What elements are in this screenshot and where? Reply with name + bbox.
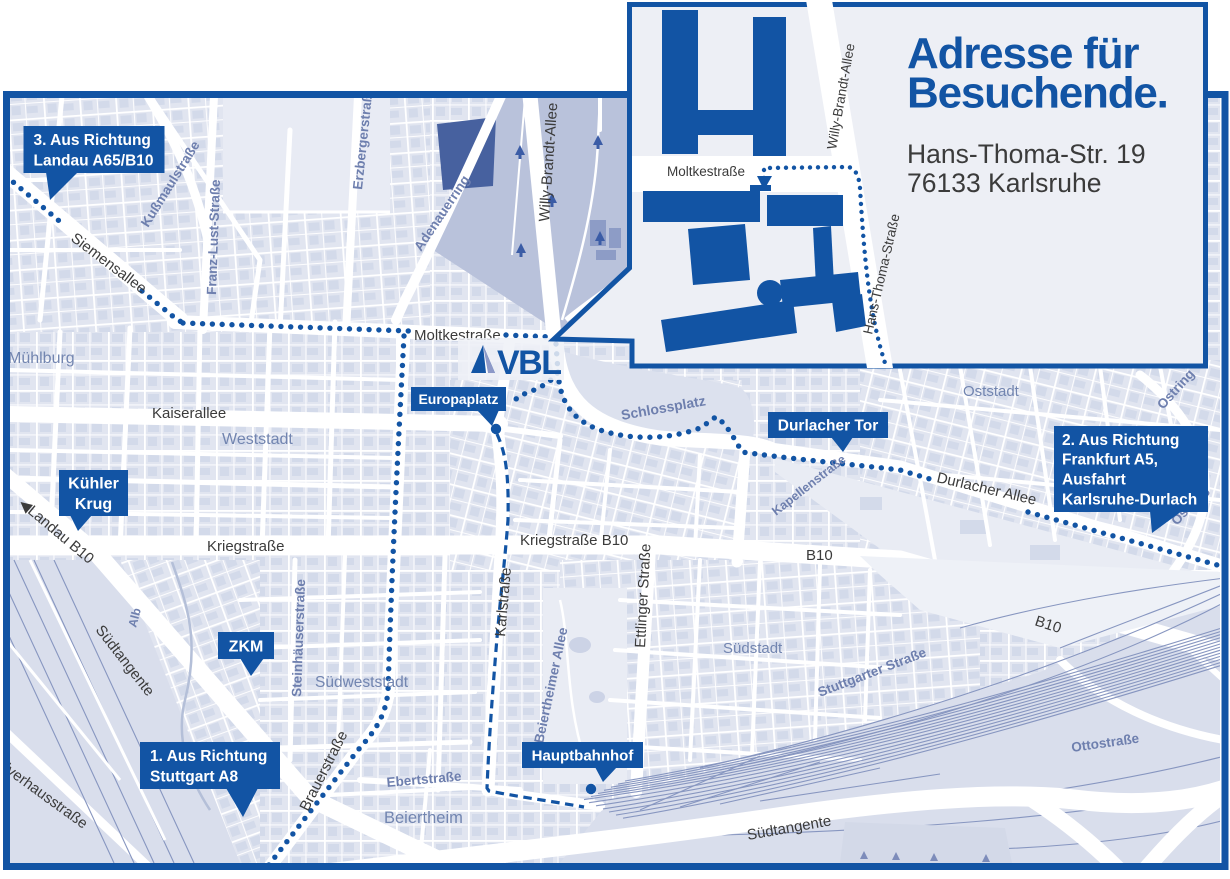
svg-text:Ausfahrt: Ausfahrt [1062, 472, 1126, 489]
svg-text:Kühler: Kühler [68, 476, 119, 493]
svg-text:Südweststadt: Südweststadt [315, 674, 409, 691]
svg-text:1. Aus Richtung: 1. Aus Richtung [150, 748, 267, 765]
svg-text:ZKM: ZKM [229, 638, 264, 655]
svg-text:Oststadt: Oststadt [963, 383, 1020, 400]
svg-text:76133 Karlsruhe: 76133 Karlsruhe [907, 168, 1101, 198]
svg-text:Beiertheim: Beiertheim [384, 809, 463, 827]
svg-text:VBL: VBL [497, 344, 561, 382]
svg-text:Karlsruhe-Durlach: Karlsruhe-Durlach [1062, 491, 1197, 508]
svg-text:Landau A65/B10: Landau A65/B10 [34, 152, 154, 169]
svg-text:3. Aus Richtung: 3. Aus Richtung [34, 132, 151, 149]
svg-text:Durlacher Tor: Durlacher Tor [778, 418, 879, 435]
svg-text:Kriegstraße: Kriegstraße [207, 538, 285, 555]
svg-text:Weststadt: Weststadt [222, 431, 293, 448]
svg-text:Europaplatz: Europaplatz [418, 391, 498, 407]
svg-text:Kriegstraße B10: Kriegstraße B10 [520, 532, 628, 549]
svg-text:Besuchende.: Besuchende. [907, 69, 1168, 118]
svg-text:Mühlburg: Mühlburg [8, 350, 75, 367]
svg-text:Moltkestraße: Moltkestraße [667, 164, 745, 179]
svg-text:B10: B10 [806, 547, 833, 564]
svg-text:Frankfurt A5,: Frankfurt A5, [1062, 452, 1158, 469]
svg-text:Krug: Krug [75, 496, 112, 513]
svg-text:Hans-Thoma-Str. 19: Hans-Thoma-Str. 19 [907, 139, 1146, 169]
svg-text:2. Aus Richtung: 2. Aus Richtung [1062, 432, 1179, 449]
svg-text:Hauptbahnhof: Hauptbahnhof [532, 747, 635, 764]
svg-text:Stuttgart A8: Stuttgart A8 [150, 768, 238, 785]
svg-text:Kaiserallee: Kaiserallee [152, 405, 226, 422]
svg-text:Südstadt: Südstadt [723, 640, 783, 657]
